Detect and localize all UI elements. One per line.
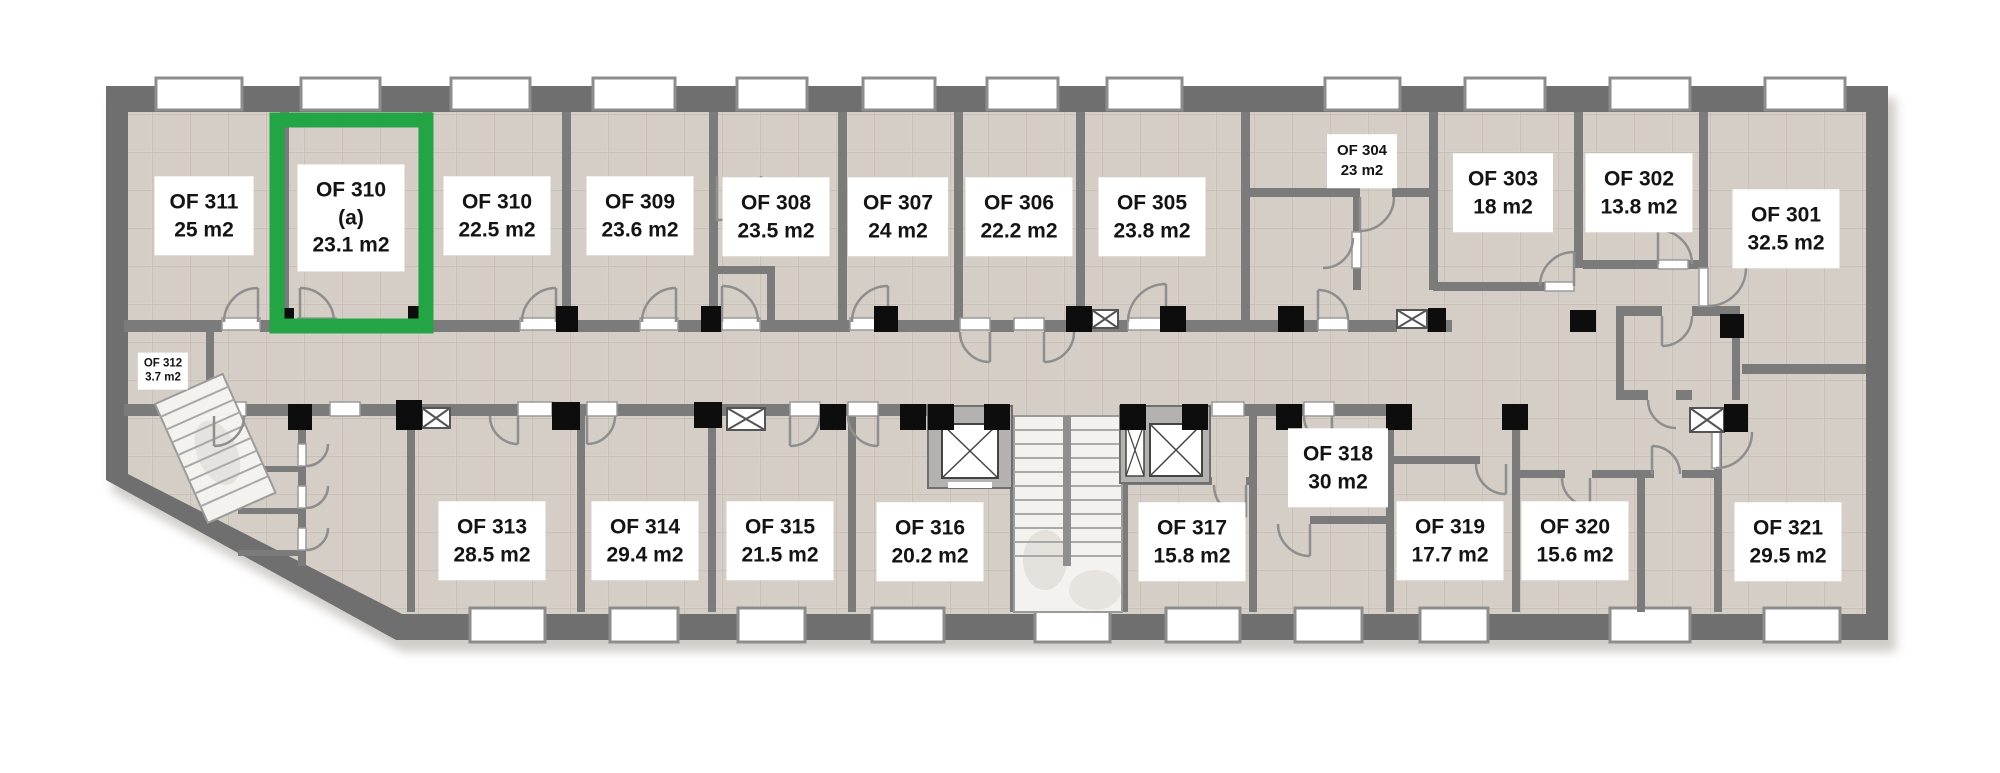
room-label-of-318[interactable]: OF 31830 m2 <box>1288 428 1388 507</box>
room-label-of-313[interactable]: OF 31328.5 m2 <box>438 501 545 580</box>
room-label-of-320[interactable]: OF 32015.6 m2 <box>1521 501 1628 580</box>
room-label-of-305[interactable]: OF 30523.8 m2 <box>1098 177 1205 256</box>
room-label-of-308[interactable]: OF 30823.5 m2 <box>722 177 829 256</box>
room-label-of-319[interactable]: OF 31917.7 m2 <box>1396 501 1503 580</box>
room-label-of-316[interactable]: OF 31620.2 m2 <box>876 502 983 581</box>
room-label-of-309[interactable]: OF 30923.6 m2 <box>586 176 693 255</box>
floorplan-canvas: OF 31125 m2 OF 310(a)23.1 m2 OF 31022.5 … <box>0 0 2000 773</box>
room-label-of-312[interactable]: OF 3123.7 m2 <box>138 353 188 390</box>
room-label-of-314[interactable]: OF 31429.4 m2 <box>591 501 698 580</box>
room-label-of-303[interactable]: OF 30318 m2 <box>1453 153 1553 232</box>
room-label-of-306[interactable]: OF 30622.2 m2 <box>965 177 1072 256</box>
room-label-of-321[interactable]: OF 32129.5 m2 <box>1734 502 1841 581</box>
room-label-of-315[interactable]: OF 31521.5 m2 <box>726 501 833 580</box>
floorplan-drawing <box>0 0 2000 773</box>
room-label-of-302[interactable]: OF 30213.8 m2 <box>1585 153 1692 232</box>
staircase-main <box>1014 416 1122 612</box>
room-label-of-310[interactable]: OF 31022.5 m2 <box>443 176 550 255</box>
room-label-of-310-a[interactable]: OF 310(a)23.1 m2 <box>297 164 404 271</box>
room-label-of-304[interactable]: OF 30423 m2 <box>1327 134 1397 188</box>
room-label-of-307[interactable]: OF 30724 m2 <box>848 177 948 256</box>
room-label-of-301[interactable]: OF 30132.5 m2 <box>1732 189 1839 268</box>
room-label-of-317[interactable]: OF 31715.8 m2 <box>1138 502 1245 581</box>
room-label-of-311[interactable]: OF 31125 m2 <box>155 176 254 255</box>
